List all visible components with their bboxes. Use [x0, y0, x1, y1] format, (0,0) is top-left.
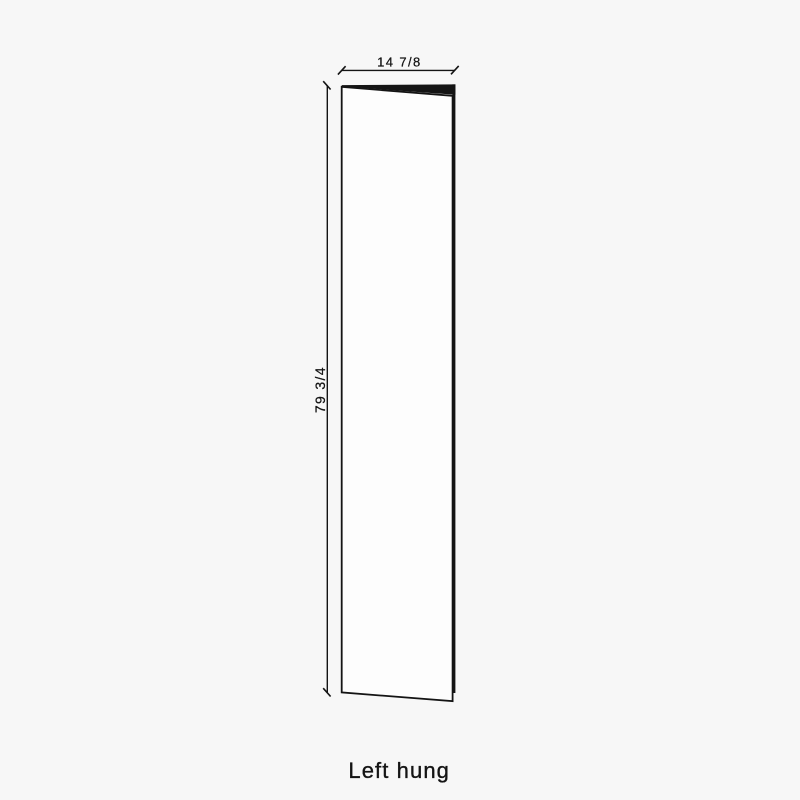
svg-text:79 3/4: 79 3/4	[312, 366, 328, 413]
svg-text:14 7/8: 14 7/8	[377, 55, 422, 70]
svg-text:Left hung: Left hung	[348, 758, 450, 783]
